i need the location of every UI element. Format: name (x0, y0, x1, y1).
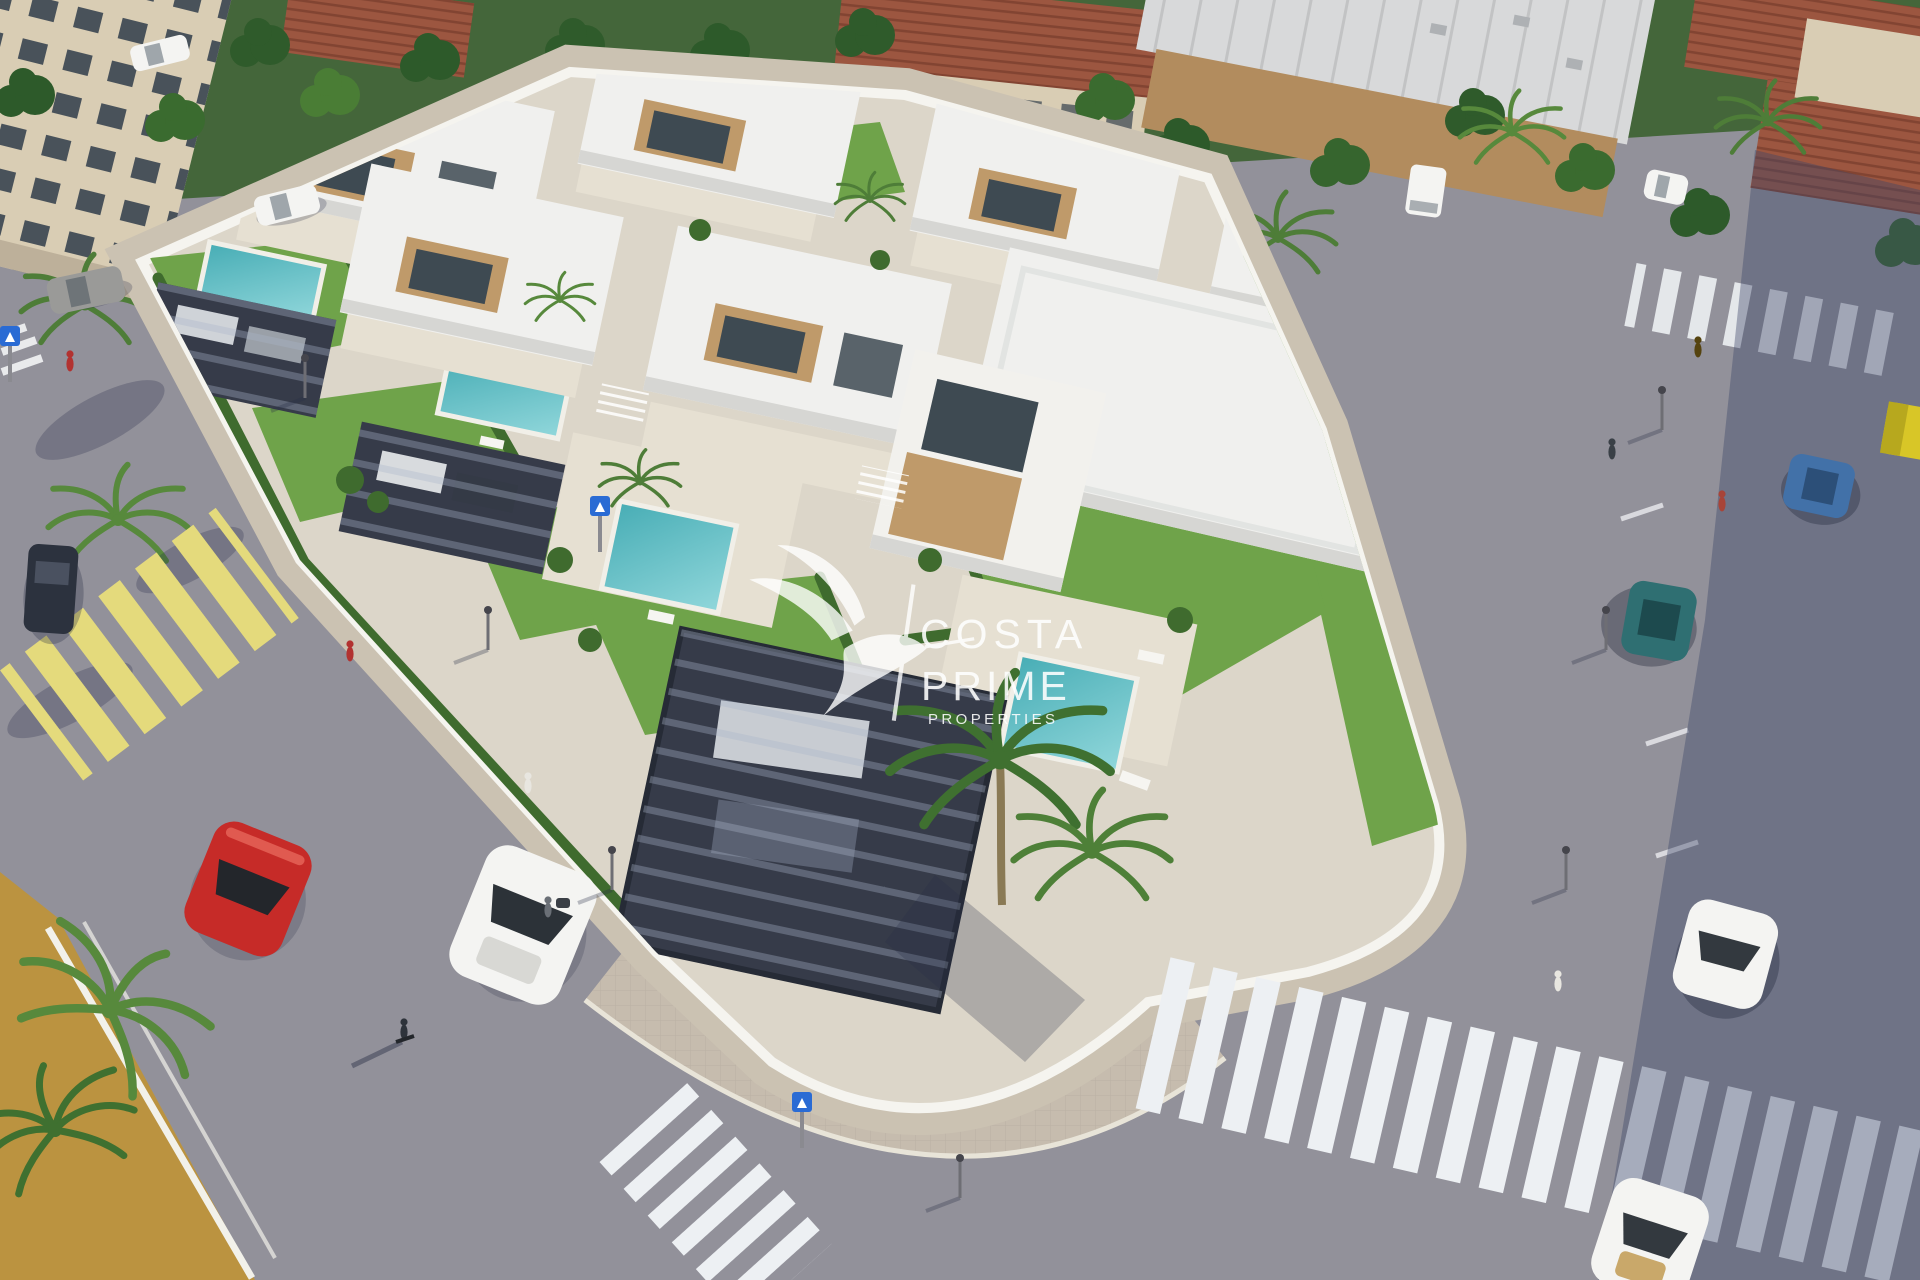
watermark-line2: PRIME (921, 663, 1071, 709)
van-white-top (1405, 164, 1448, 219)
scene-canvas: COSTA PRIME PROPERTIES (0, 0, 1920, 1280)
aerial-render-image: COSTA PRIME PROPERTIES (0, 0, 1920, 1280)
watermark-line3: PROPERTIES (928, 711, 1058, 728)
watermark-line1: COSTA (920, 611, 1088, 657)
